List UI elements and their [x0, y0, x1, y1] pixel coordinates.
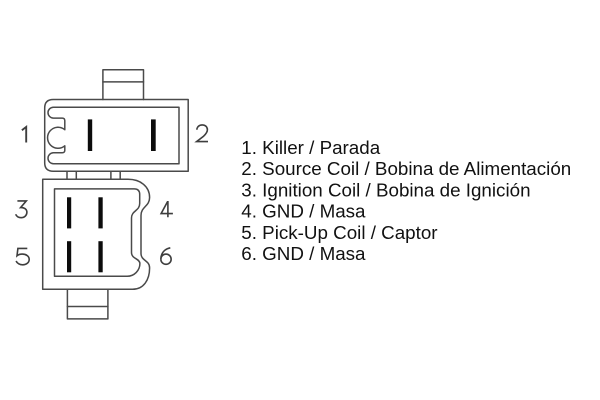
- svg-text:4. GND / Masa: 4. GND / Masa: [241, 201, 366, 222]
- svg-text:6. GND / Masa: 6. GND / Masa: [241, 243, 366, 264]
- svg-text:5. Pick-Up Coil / Captor: 5. Pick-Up Coil / Captor: [241, 222, 437, 243]
- svg-text:3. Ignition Coil / Bobina de I: 3. Ignition Coil / Bobina de Ignición: [241, 179, 530, 200]
- svg-text:1. Killer / Parada: 1. Killer / Parada: [241, 137, 380, 158]
- svg-text:2. Source Coil / Bobina de Ali: 2. Source Coil / Bobina de Alimentación: [241, 158, 571, 179]
